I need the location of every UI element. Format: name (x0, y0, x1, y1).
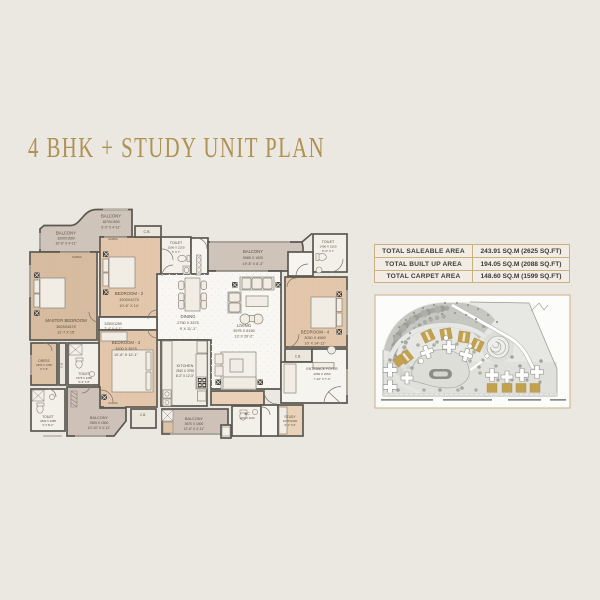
svg-text:3050 X 4560: 3050 X 4560 (304, 336, 326, 340)
svg-text:C.B.: C.B. (60, 362, 64, 368)
svg-text:BALCONY: BALCONY (101, 214, 121, 219)
svg-text:6'-1" X 8': 6'-1" X 8' (284, 423, 296, 427)
svg-text:19'-8" X 6'-3": 19'-8" X 6'-3" (243, 262, 264, 266)
svg-text:6' X 8': 6' X 8' (40, 367, 48, 371)
svg-text:6' X 8'-2": 6' X 8'-2" (42, 423, 53, 427)
svg-text:SLIDING: SLIDING (72, 256, 82, 259)
svg-text:2060 X 2250: 2060 X 2250 (313, 372, 330, 376)
svg-text:8'-3" X 12'-5": 8'-3" X 12'-5" (176, 374, 194, 378)
svg-text:5985 X 1920: 5985 X 1920 (243, 256, 263, 260)
svg-text:WC: WC (244, 412, 250, 416)
svg-text:7'-10" X 7'-4": 7'-10" X 7'-4" (313, 377, 330, 381)
svg-text:3200 X 3675: 3200 X 3675 (115, 347, 137, 351)
svg-text:3305 X 1500: 3305 X 1500 (90, 421, 109, 425)
svg-text:BEDROOM - 4: BEDROOM - 4 (301, 330, 330, 335)
svg-text:LIVING: LIVING (237, 323, 252, 328)
svg-text:SLIDING: SLIDING (108, 238, 118, 241)
svg-text:10'-6" X 14': 10'-6" X 14' (119, 304, 139, 308)
svg-text:5'-2" X 8': 5'-2" X 8' (78, 380, 90, 384)
svg-text:BALCONY: BALCONY (185, 417, 204, 421)
svg-text:7'-4" X 4'-1": 7'-4" X 4'-1" (104, 327, 122, 331)
svg-text:10'-6" X 12'-1": 10'-6" X 12'-1" (114, 353, 139, 357)
svg-text:3625X4675: 3625X4675 (56, 325, 75, 329)
svg-text:11'-7 X 15': 11'-7 X 15' (57, 331, 75, 335)
svg-text:3200X4275: 3200X4275 (119, 298, 138, 302)
svg-text:3975 X 6150: 3975 X 6150 (233, 329, 255, 333)
svg-text:MASTER BEDROOM: MASTER BEDROOM (45, 318, 87, 323)
svg-text:6'-0" X 4'-11": 6'-0" X 4'-11" (101, 226, 121, 230)
svg-text:2510 X 3795: 2510 X 3795 (176, 369, 194, 373)
svg-text:10'-6" X 4'-11": 10'-6" X 4'-11" (55, 242, 77, 246)
svg-text:13' X 20'-2": 13' X 20'-2" (234, 335, 254, 339)
svg-text:1500 X 2150: 1500 X 2150 (167, 246, 184, 250)
svg-text:KITCHEN: KITCHEN (177, 364, 194, 368)
svg-text:C.B.: C.B. (144, 230, 151, 234)
svg-text:2250X1250: 2250X1250 (104, 322, 121, 326)
svg-text:10' X 14'-11": 10' X 14'-11" (304, 342, 326, 346)
svg-text:BEDROOM - 2: BEDROOM - 2 (115, 291, 144, 296)
svg-text:1400 X 2150: 1400 X 2150 (319, 245, 336, 249)
svg-text:BEDROOM - 3: BEDROOM - 3 (112, 340, 141, 345)
svg-text:BALCONY: BALCONY (56, 231, 76, 236)
svg-text:2750 X 3375: 2750 X 3375 (177, 321, 199, 325)
svg-text:9' X 11'-1": 9' X 11'-1" (180, 327, 198, 331)
svg-text:12'-6" X 4'-11": 12'-6" X 4'-11" (184, 427, 205, 431)
svg-text:3200X1500: 3200X1500 (57, 237, 74, 241)
svg-text:DINING: DINING (180, 314, 196, 319)
svg-text:BALCONY: BALCONY (243, 249, 263, 254)
svg-text:5'-3" X 7': 5'-3" X 7' (322, 249, 334, 253)
svg-text:1870X1500: 1870X1500 (102, 220, 119, 224)
svg-text:1200 X 2100: 1200 X 2100 (239, 416, 255, 420)
svg-text:BALCONY: BALCONY (90, 416, 109, 420)
svg-text:TOILET: TOILET (170, 241, 183, 245)
svg-text:SLIDING: SLIDING (108, 402, 118, 405)
svg-text:TOILET: TOILET (322, 240, 335, 244)
svg-text:5' X 7': 5' X 7' (172, 250, 181, 254)
svg-text:10'-10" X 4'-11": 10'-10" X 4'-11" (88, 426, 111, 430)
svg-text:C.B.: C.B. (140, 413, 146, 417)
svg-text:3670 X 1500: 3670 X 1500 (185, 422, 204, 426)
svg-text:C.B.: C.B. (295, 355, 301, 359)
svg-text:ENTRANCE FOYER: ENTRANCE FOYER (306, 367, 338, 371)
